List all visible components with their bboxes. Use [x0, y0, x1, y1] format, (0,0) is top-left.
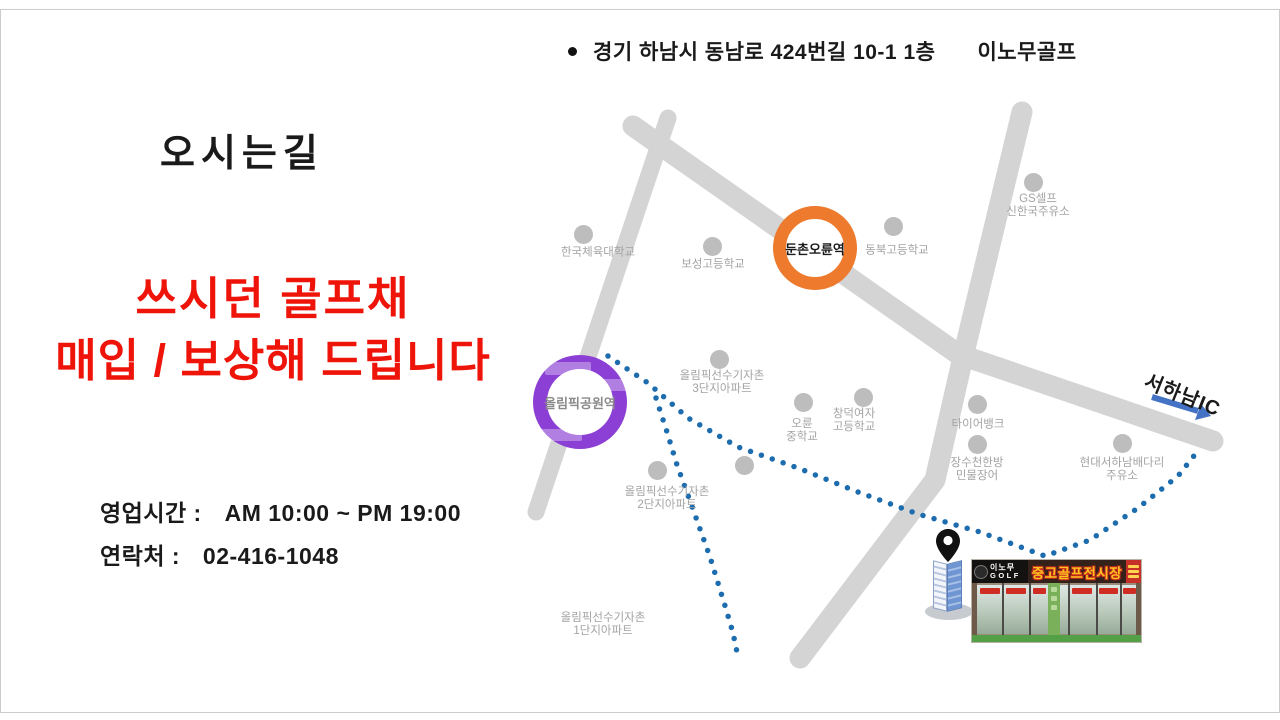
- sign-main-block: 중고골프전시장: [1028, 560, 1126, 583]
- window-frame: [1029, 583, 1031, 642]
- station-ring: 둔촌오륜역: [773, 206, 857, 290]
- poi-dot: [1024, 173, 1043, 192]
- poi-dot: [648, 461, 667, 480]
- window-banner: [1123, 588, 1136, 594]
- poi-label: 보성고등학교: [681, 259, 744, 272]
- poi-dot: [968, 435, 987, 454]
- poi-dot: [710, 350, 729, 369]
- station-label: 둔촌오륜역: [785, 239, 845, 258]
- road-left: [536, 118, 668, 512]
- sign-brand-line2: GOLF: [990, 572, 1021, 580]
- location-pin-icon: [936, 529, 960, 562]
- poi-label: 오륜중학교: [786, 418, 818, 444]
- storefront-windows: [972, 583, 1141, 642]
- window-banner: [1072, 588, 1092, 594]
- storefront-sign: 이노무 GOLF 중고골프전시장: [972, 560, 1141, 583]
- poi-label: GS셀프신한국주유소: [1006, 193, 1069, 219]
- poi-dot: [968, 395, 987, 414]
- poi-label: 현대서하남배다리주유소: [1080, 457, 1165, 483]
- poi-dot-unlabeled: [735, 456, 754, 475]
- poi-label: 동북고등학교: [865, 245, 928, 258]
- window-frame: [1068, 583, 1070, 642]
- storefront-photo: 이노무 GOLF 중고골프전시장: [972, 560, 1141, 642]
- poi-dot: [574, 225, 593, 244]
- shop-building-icon: [925, 556, 973, 622]
- poi-dot: [703, 237, 722, 256]
- window-banner: [1033, 588, 1046, 594]
- poi-label: 장수천한방민물장어: [951, 457, 1004, 483]
- green-pillar: [1048, 583, 1060, 636]
- watermark-patch: [545, 362, 591, 375]
- storefront-base: [972, 635, 1141, 642]
- poi-label: 창덕여자고등학교: [833, 408, 875, 434]
- building-left-face: [933, 560, 947, 611]
- route-dotted-south: [656, 398, 738, 657]
- window-banner: [1099, 588, 1118, 594]
- window-banner: [980, 588, 1000, 594]
- sign-brand-block: 이노무 GOLF: [972, 560, 1028, 583]
- window-frame: [1120, 583, 1122, 642]
- window-frame: [1096, 583, 1098, 642]
- watermark-patch: [600, 379, 630, 391]
- window-frame: [1002, 583, 1004, 642]
- poi-dot: [1113, 434, 1132, 453]
- directions-flyer: 경기 하남시 동남로 424번길 10-1 1층 이노무골프 오시는길 쓰시던 …: [0, 0, 1280, 720]
- poi-label: 올림픽선수기자촌1단지아파트: [561, 612, 646, 638]
- poi-dot: [884, 217, 903, 236]
- sign-side-panel: [1126, 560, 1141, 583]
- poi-label: 올림픽선수기자촌3단지아파트: [680, 370, 765, 396]
- station-label: 올림픽공원역: [544, 393, 616, 412]
- building-right-face: [947, 560, 962, 612]
- window-banner: [1006, 588, 1026, 594]
- poi-label: 올림픽선수기자촌2단지아파트: [625, 486, 710, 512]
- sign-main-text: 중고골프전시장: [1032, 562, 1122, 582]
- poi-label: 한국체육대학교: [561, 247, 635, 260]
- storefront-pillar: [1136, 583, 1141, 642]
- shop-logo-icon: [974, 565, 988, 579]
- watermark-patch: [540, 429, 582, 441]
- poi-dot: [854, 388, 873, 407]
- poi-dot: [794, 393, 813, 412]
- poi-label: 타이어뱅크: [952, 419, 1005, 432]
